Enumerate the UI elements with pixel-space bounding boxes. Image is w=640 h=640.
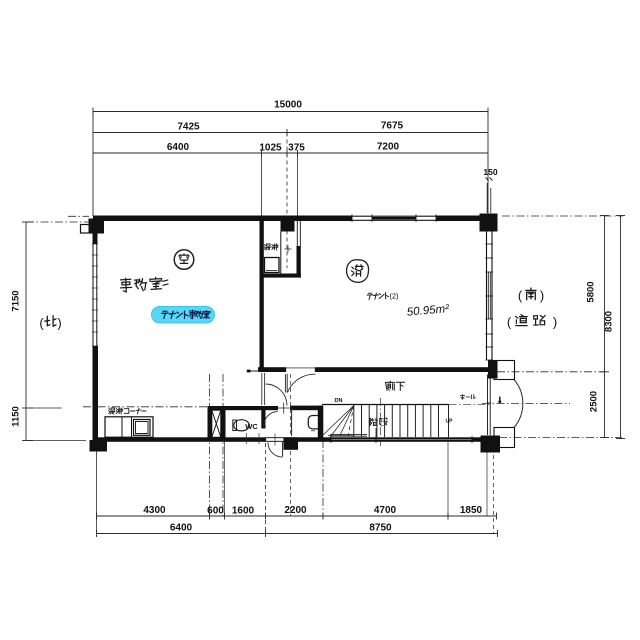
svg-text:7425: 7425 xyxy=(177,122,200,133)
svg-text:7200: 7200 xyxy=(377,142,400,153)
svg-text:4700: 4700 xyxy=(374,505,397,516)
svg-text:8750: 8750 xyxy=(369,523,392,534)
svg-text:1025: 1025 xyxy=(259,143,282,154)
svg-text:(: ( xyxy=(39,316,44,331)
svg-text:1150: 1150 xyxy=(11,406,22,427)
svg-text:8300: 8300 xyxy=(604,311,615,332)
svg-text:4300: 4300 xyxy=(143,505,166,516)
svg-text:(: ( xyxy=(507,315,512,330)
svg-text:): ) xyxy=(540,288,544,303)
svg-text:WC: WC xyxy=(245,422,258,431)
svg-text:): ) xyxy=(553,315,557,330)
svg-text:2500: 2500 xyxy=(589,391,600,412)
svg-text:6400: 6400 xyxy=(167,142,190,153)
svg-text:5800: 5800 xyxy=(586,281,597,302)
svg-text:375: 375 xyxy=(288,143,305,154)
svg-text:(2): (2) xyxy=(389,291,399,300)
svg-text:1600: 1600 xyxy=(232,506,255,517)
svg-text:2200: 2200 xyxy=(284,505,307,516)
svg-text:6400: 6400 xyxy=(170,523,193,534)
svg-text:7150: 7150 xyxy=(11,290,22,311)
svg-text:DN: DN xyxy=(335,398,343,404)
svg-text:UP: UP xyxy=(446,419,454,425)
svg-text:1850: 1850 xyxy=(460,505,483,516)
svg-text:(: ( xyxy=(518,288,523,303)
svg-text:7675: 7675 xyxy=(381,121,404,132)
svg-text:): ) xyxy=(57,316,61,331)
svg-text:150: 150 xyxy=(483,167,497,177)
svg-text:15000: 15000 xyxy=(274,100,302,111)
